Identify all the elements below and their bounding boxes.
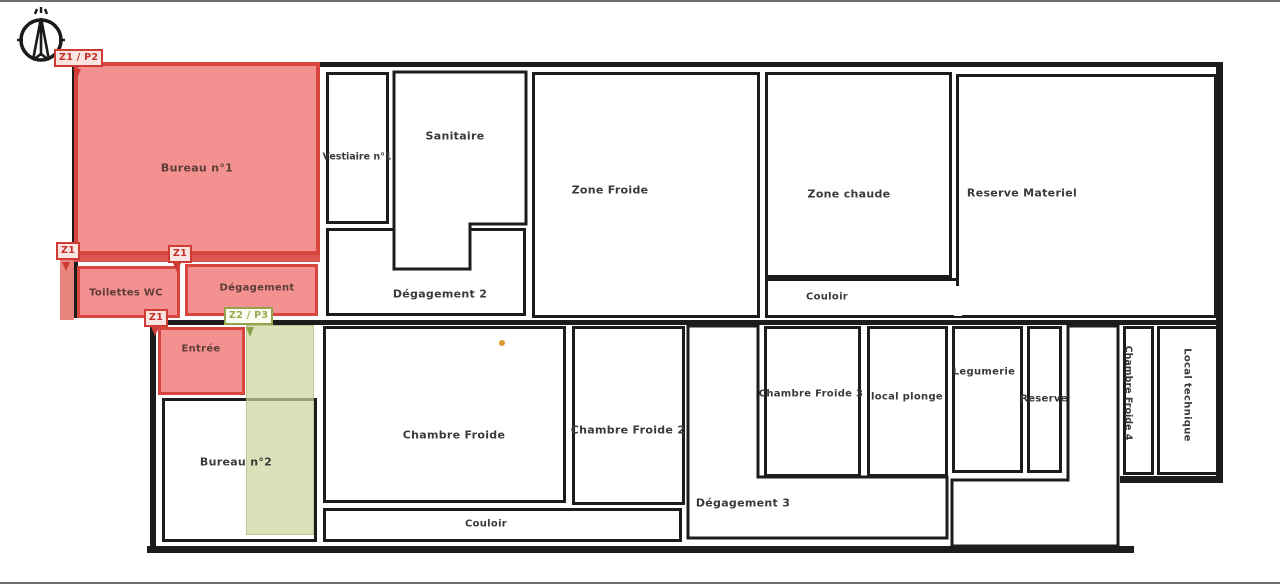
room-label-entree: Entrée (181, 344, 220, 355)
room-label-vestiaire-1: Vestiaire n°1 (323, 152, 392, 163)
zone-marker-z2-p3: Z2 / P3 (224, 307, 273, 325)
room-label-bureau-1: Bureau n°1 (161, 162, 233, 175)
door-opening (954, 286, 962, 316)
room-chambre-froide-3 (764, 326, 861, 477)
room-label-zone-froide: Zone Froide (572, 184, 649, 197)
scan-dot (499, 340, 505, 346)
room-label-reserve: Reserve (1020, 394, 1068, 405)
room-label-local-plonge: local plonge (871, 392, 943, 403)
room-corridor-l (950, 324, 1122, 550)
room-label-legumerie: Legumerie (953, 367, 1015, 378)
zone-marker-z1-p2: Z1 / P2 (54, 49, 103, 67)
room-label-couloir-haut: Couloir (806, 292, 848, 303)
zone-marker-z1-entree: Z1 (144, 309, 168, 327)
scan-border-top (0, 0, 1280, 2)
room-label-reserve-materiel: Reserve Materiel (967, 187, 1077, 200)
room-label-chambre-froide-3: Chambre Froide 3 (759, 389, 864, 400)
zone2-highlight (246, 325, 314, 535)
room-vestiaire-1 (326, 72, 389, 224)
room-chambre-froide (323, 326, 566, 503)
wall (1120, 476, 1223, 483)
zone-arrow-icon (173, 263, 181, 272)
scan-border-bottom (0, 582, 1280, 584)
room-label-chambre-froide-4: Chambre Froide 4 (1123, 346, 1134, 441)
room-label-chambre-froide-2: Chambre Froide 2 (571, 424, 686, 437)
room-label-local-technique: Local technique (1182, 348, 1193, 442)
room-label-toilettes-wc: Toilettes WC (89, 288, 163, 299)
room-bureau-1 (74, 62, 320, 255)
room-zone-chaude (765, 72, 952, 278)
room-entree (158, 327, 245, 395)
room-label-degagement-3: Dégagement 3 (696, 497, 790, 510)
zone-marker-z1-top: Z1 (56, 242, 80, 260)
zone-arrow-icon (62, 262, 70, 271)
room-couloir-haut (765, 278, 956, 318)
room-label-zone-chaude: Zone chaude (808, 188, 891, 201)
floor-plan: Bureau n°1 Vestiaire n°1 Sanitaire Dégag… (0, 0, 1280, 585)
zone-marker-z1-mid: Z1 (168, 245, 192, 263)
room-label-chambre-froide: Chambre Froide (403, 429, 505, 442)
room-label-sanitaire: Sanitaire (426, 130, 485, 143)
zone-arrow-icon (151, 327, 159, 336)
room-sanitaire (392, 70, 530, 273)
room-label-couloir-bas: Couloir (465, 519, 507, 530)
wall (150, 318, 156, 553)
room-label-degagement: Dégagement (219, 283, 294, 294)
room-chambre-froide-2 (572, 326, 685, 505)
zone-arrow-icon (246, 327, 254, 337)
room-label-degagement-2: Dégagement 2 (393, 288, 487, 301)
room-label-bureau-2: Bureau n°2 (200, 456, 272, 469)
zone-arrow-icon (73, 69, 81, 78)
